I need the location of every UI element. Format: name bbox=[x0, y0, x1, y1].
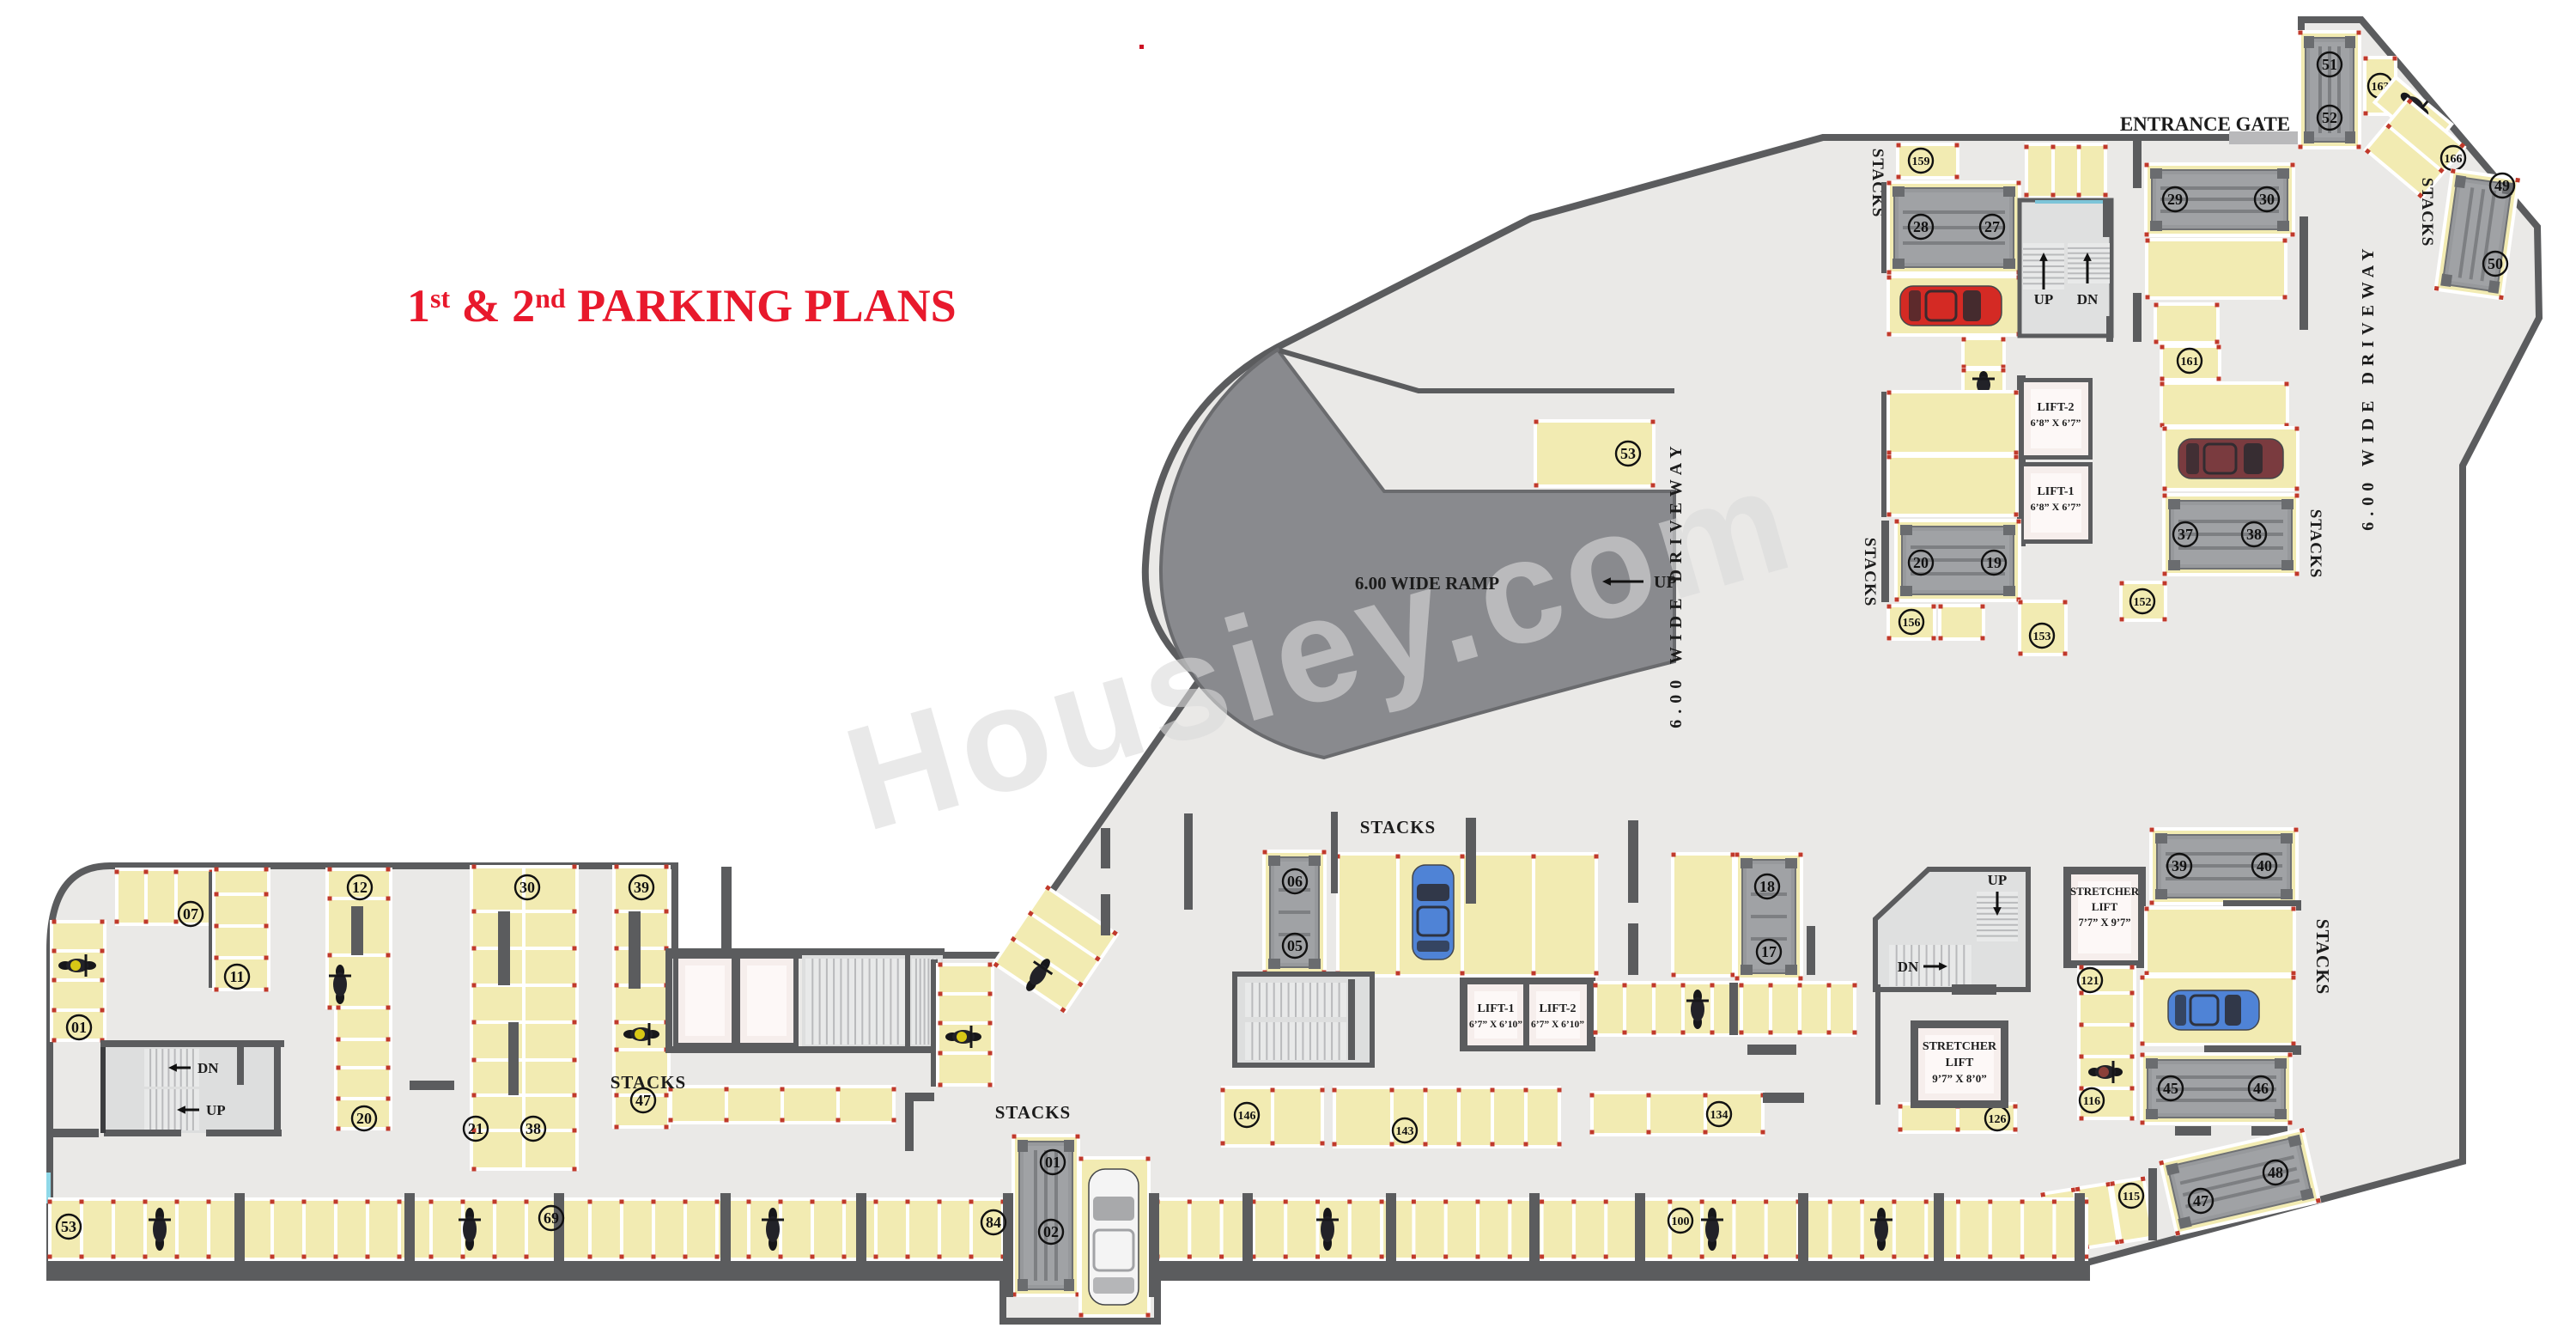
svg-text:STACKS: STACKS bbox=[2312, 919, 2333, 995]
svg-text:27: 27 bbox=[1984, 218, 2000, 235]
svg-text:84: 84 bbox=[986, 1214, 1001, 1231]
svg-text:UP: UP bbox=[2034, 291, 2054, 308]
svg-text:20: 20 bbox=[1913, 554, 1929, 571]
svg-text:1st & 2nd PARKING PLANS: 1st & 2nd PARKING PLANS bbox=[407, 280, 957, 332]
svg-text:LIFT-2: LIFT-2 bbox=[2037, 401, 2074, 414]
svg-text:01: 01 bbox=[71, 1019, 87, 1036]
svg-text:DN: DN bbox=[2077, 291, 2099, 308]
svg-text:53: 53 bbox=[61, 1218, 76, 1235]
svg-text:18: 18 bbox=[1759, 878, 1775, 895]
svg-text:121: 121 bbox=[2081, 975, 2099, 988]
svg-text:LIFT-2: LIFT-2 bbox=[1539, 1002, 1576, 1015]
svg-text:STACKS: STACKS bbox=[611, 1072, 686, 1093]
svg-text:166: 166 bbox=[2445, 153, 2463, 166]
svg-text:30: 30 bbox=[2259, 191, 2275, 208]
svg-text:100: 100 bbox=[1672, 1215, 1690, 1228]
svg-text:38: 38 bbox=[526, 1120, 541, 1137]
svg-text:DN: DN bbox=[1898, 959, 1919, 975]
svg-text:9’7” X 8’0”: 9’7” X 8’0” bbox=[1932, 1072, 1987, 1085]
svg-text:69: 69 bbox=[544, 1209, 559, 1227]
svg-text:29: 29 bbox=[2167, 191, 2183, 208]
svg-text:46: 46 bbox=[2253, 1080, 2269, 1097]
svg-text:LIFT: LIFT bbox=[1946, 1057, 1974, 1069]
svg-text:159: 159 bbox=[1912, 155, 1930, 168]
svg-text:39: 39 bbox=[634, 879, 649, 896]
svg-text:50: 50 bbox=[2488, 255, 2503, 272]
svg-text:126: 126 bbox=[1989, 1113, 2007, 1126]
svg-text:51: 51 bbox=[2322, 56, 2337, 73]
svg-text:UP: UP bbox=[206, 1102, 226, 1118]
svg-text:48: 48 bbox=[2268, 1164, 2283, 1181]
svg-text:11: 11 bbox=[229, 968, 244, 985]
svg-text:LIFT: LIFT bbox=[2092, 900, 2118, 913]
svg-text:28: 28 bbox=[1913, 218, 1929, 235]
svg-text:07: 07 bbox=[183, 905, 198, 923]
svg-text:19: 19 bbox=[1986, 554, 2002, 571]
svg-text:47: 47 bbox=[635, 1092, 651, 1109]
svg-text:01: 01 bbox=[1045, 1154, 1060, 1171]
svg-text:38: 38 bbox=[2246, 526, 2262, 543]
svg-text:STACKS: STACKS bbox=[995, 1102, 1071, 1123]
svg-text:152: 152 bbox=[2134, 596, 2152, 609]
svg-text:UP: UP bbox=[1988, 872, 2008, 888]
svg-text:156: 156 bbox=[1903, 617, 1921, 630]
svg-text:45: 45 bbox=[2163, 1080, 2178, 1097]
svg-text:6.00 WIDE DRIVEWAY: 6.00 WIDE DRIVEWAY bbox=[2359, 242, 2378, 531]
svg-text:143: 143 bbox=[1396, 1125, 1414, 1138]
svg-text:134: 134 bbox=[1710, 1109, 1728, 1122]
svg-text:6.00 WIDE DRIVEWAY: 6.00 WIDE DRIVEWAY bbox=[1667, 440, 1686, 728]
svg-text:49: 49 bbox=[2494, 177, 2510, 194]
svg-text:6’8” X 6’7”: 6’8” X 6’7” bbox=[2031, 501, 2081, 513]
svg-text:47: 47 bbox=[2193, 1192, 2208, 1209]
svg-text:7’7” X 9’7”: 7’7” X 9’7” bbox=[2078, 917, 2130, 929]
svg-text:STACKS: STACKS bbox=[2306, 509, 2324, 579]
svg-text:146: 146 bbox=[1238, 1110, 1256, 1123]
svg-text:39: 39 bbox=[2172, 857, 2187, 874]
svg-text:LIFT-1: LIFT-1 bbox=[2037, 485, 2074, 498]
svg-text:153: 153 bbox=[2033, 630, 2051, 643]
svg-text:21: 21 bbox=[468, 1120, 483, 1137]
svg-text:02: 02 bbox=[1043, 1223, 1059, 1240]
svg-text:6’8” X 6’7”: 6’8” X 6’7” bbox=[2031, 417, 2081, 429]
svg-text:12: 12 bbox=[352, 879, 368, 896]
svg-text:17: 17 bbox=[1761, 943, 1777, 960]
svg-text:6.00 WIDE RAMP: 6.00 WIDE RAMP bbox=[1355, 573, 1499, 594]
svg-text:20: 20 bbox=[356, 1110, 372, 1127]
svg-text:STACKS: STACKS bbox=[1861, 538, 1879, 607]
svg-text:06: 06 bbox=[1287, 873, 1303, 890]
svg-text:05: 05 bbox=[1287, 937, 1303, 954]
svg-text:37: 37 bbox=[2178, 526, 2193, 543]
svg-text:30: 30 bbox=[519, 879, 535, 896]
svg-text:116: 116 bbox=[2083, 1095, 2100, 1108]
svg-text:161: 161 bbox=[2181, 356, 2199, 369]
svg-text:DN: DN bbox=[197, 1060, 219, 1076]
svg-text:STACKS: STACKS bbox=[1360, 817, 1436, 838]
svg-text:115: 115 bbox=[2123, 1191, 2140, 1203]
svg-text:6’7” X 6’10”: 6’7” X 6’10” bbox=[1469, 1020, 1522, 1030]
svg-text:STRETCHER: STRETCHER bbox=[2070, 885, 2140, 898]
svg-text:ENTRANCE GATE: ENTRANCE GATE bbox=[2120, 113, 2290, 135]
svg-text:STRETCHER: STRETCHER bbox=[1923, 1040, 1997, 1053]
svg-text:STACKS: STACKS bbox=[2418, 178, 2436, 247]
svg-text:53: 53 bbox=[1620, 445, 1636, 462]
svg-text:6’7” X 6’10”: 6’7” X 6’10” bbox=[1531, 1020, 1584, 1030]
svg-text:LIFT-1: LIFT-1 bbox=[1477, 1002, 1514, 1015]
svg-text:52: 52 bbox=[2322, 109, 2337, 126]
svg-text:40: 40 bbox=[2257, 857, 2272, 874]
